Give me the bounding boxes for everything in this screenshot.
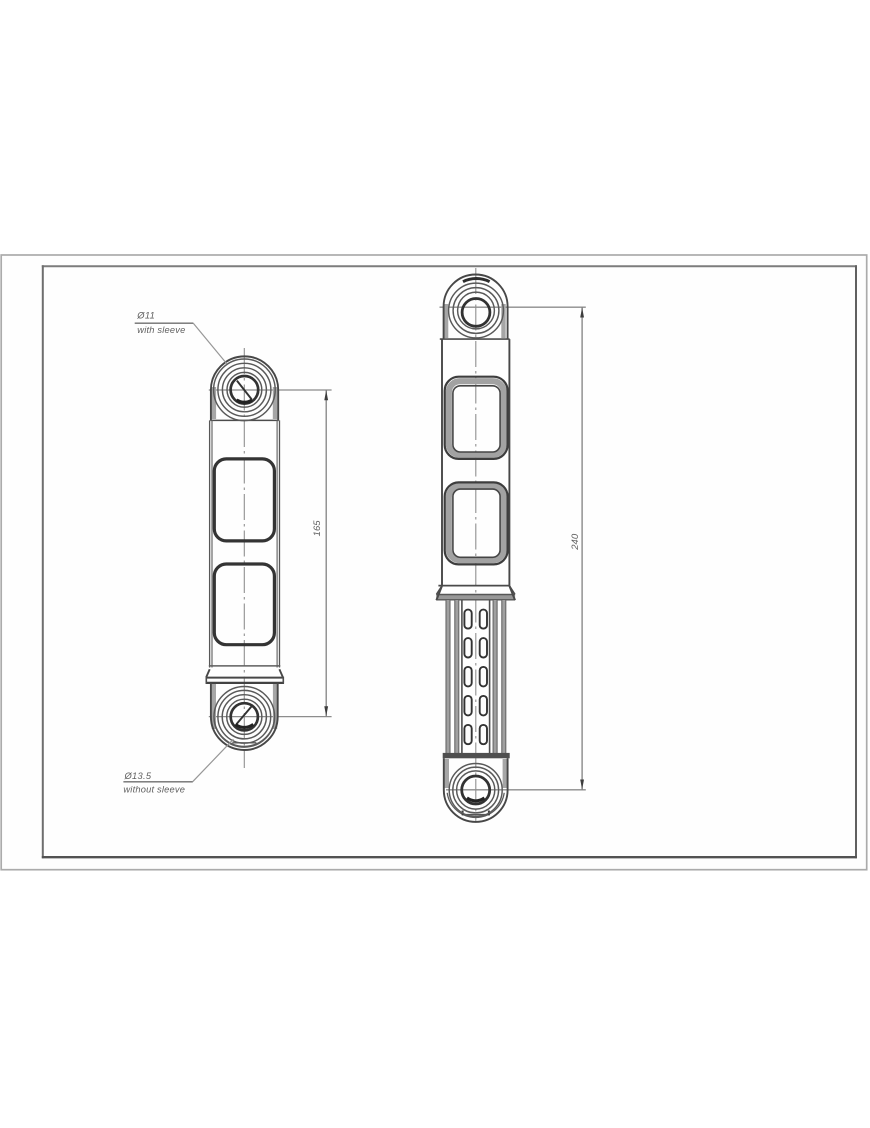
svg-text:240: 240	[570, 533, 581, 551]
svg-text:Ø13.5: Ø13.5	[124, 771, 152, 781]
svg-text:165: 165	[312, 520, 323, 537]
svg-text:with sleeve: with sleeve	[137, 325, 185, 335]
svg-text:Ø11: Ø11	[136, 311, 155, 321]
svg-text:without sleeve: without sleeve	[123, 785, 185, 795]
